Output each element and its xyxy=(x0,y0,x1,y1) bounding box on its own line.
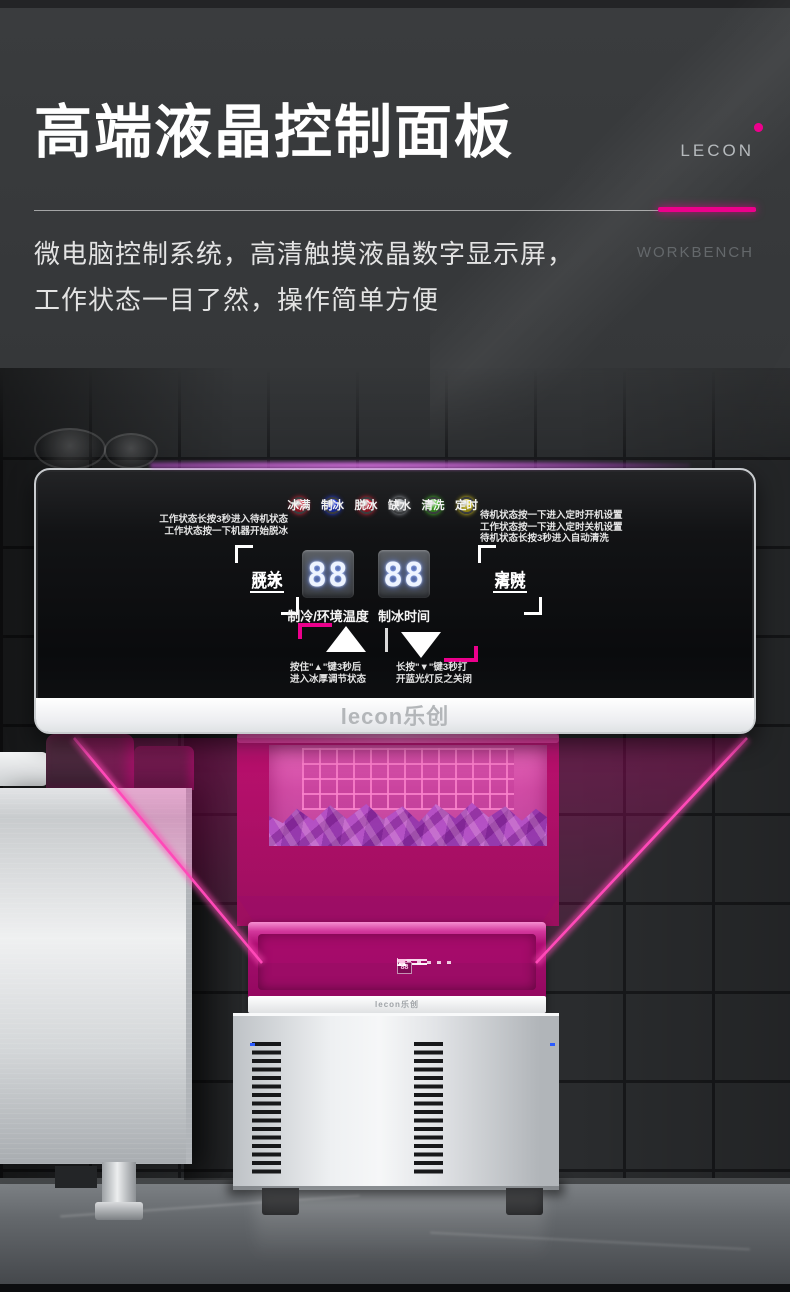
indicator-label: 缺水 xyxy=(388,497,411,513)
accent-bracket-bottom-right xyxy=(444,646,478,662)
floor-edge-shadow xyxy=(0,1284,790,1292)
seven-segment-value: 88 xyxy=(307,555,349,594)
floor-reflection xyxy=(255,1192,545,1278)
down-arrow-note: 长按"▼"键3秒打 开蓝光灯反之关闭 xyxy=(396,662,472,685)
indicator-label: 制冰 xyxy=(321,497,344,513)
power-harvest-button[interactable]: 开关 脱冰 xyxy=(245,552,289,608)
control-panel: 冰满 制冰 脱冰 缺水 清洗 定时 工作状态长按3秒进入待机状态 工作状态按一下… xyxy=(34,468,756,734)
button-label: 清洗 xyxy=(494,570,525,592)
machine-body xyxy=(233,1013,559,1190)
display-caption: 制冰时间 xyxy=(352,606,456,625)
machine-bin-rim-highlight xyxy=(237,734,559,743)
indicator-label: 定时 xyxy=(455,497,478,513)
indicator-label: 清洗 xyxy=(422,497,445,513)
evaporator-grid xyxy=(302,748,514,810)
down-arrow-button[interactable] xyxy=(401,632,441,658)
kitchen-canister xyxy=(46,734,134,790)
vent-marker xyxy=(550,1043,555,1046)
vent-marker xyxy=(250,1043,255,1046)
brand-name: LECON xyxy=(680,141,754,161)
seven-segment-value: 88 xyxy=(383,555,425,594)
arrow-separator xyxy=(385,628,388,652)
subtitle-line-1: 微电脑控制系统，高清触摸液晶数字显示屏， xyxy=(34,234,574,271)
brand-logo: lecon乐创 xyxy=(341,699,449,731)
up-arrow-note: 按住"▲"键3秒后 进入冰厚调节状态 xyxy=(290,662,366,685)
counter-surface xyxy=(0,752,48,786)
kitchen-canister xyxy=(134,746,194,790)
page-title: 高端液晶控制面板 xyxy=(34,98,514,168)
panel-logo-strip: lecon乐创 xyxy=(36,698,754,732)
product-poster: 88 88 lecon乐创 xyxy=(0,0,790,1292)
workbench-label: WORKBENCH xyxy=(637,244,754,261)
indicator-label: 脱冰 xyxy=(355,497,378,513)
panel-note-left: 工作状态长按3秒进入待机状态 工作状态按一下机器开始脱冰 xyxy=(154,514,288,537)
subtitle-line-2: 工作状态一目了然，操作简单方便 xyxy=(34,280,439,317)
mini-down-arrow-icon xyxy=(397,959,407,966)
mini-panel-screen: 88 88 xyxy=(258,934,536,990)
steel-texture xyxy=(0,788,192,1164)
button-label: 脱冰 xyxy=(251,570,282,592)
temperature-display: 88 xyxy=(302,550,354,598)
machine-logo-strip: lecon乐创 xyxy=(248,996,546,1013)
indicator-label: 冰满 xyxy=(288,497,311,513)
divider-line xyxy=(34,210,756,211)
up-arrow-button[interactable] xyxy=(326,626,366,652)
pot-lid xyxy=(34,428,106,470)
timer-clean-button[interactable]: 定时 清洗 xyxy=(488,552,532,608)
panel-top-glow xyxy=(150,461,690,470)
ice-time-display: 88 xyxy=(378,550,430,598)
divider-accent xyxy=(658,207,756,212)
cabinet-foot xyxy=(95,1202,143,1220)
background-object xyxy=(55,1166,97,1188)
dot-icon xyxy=(754,123,763,132)
panel-note-right: 待机状态按一下进入定时开机设置 工作状态按一下进入定时关机设置 待机状态长按3秒… xyxy=(480,510,632,545)
